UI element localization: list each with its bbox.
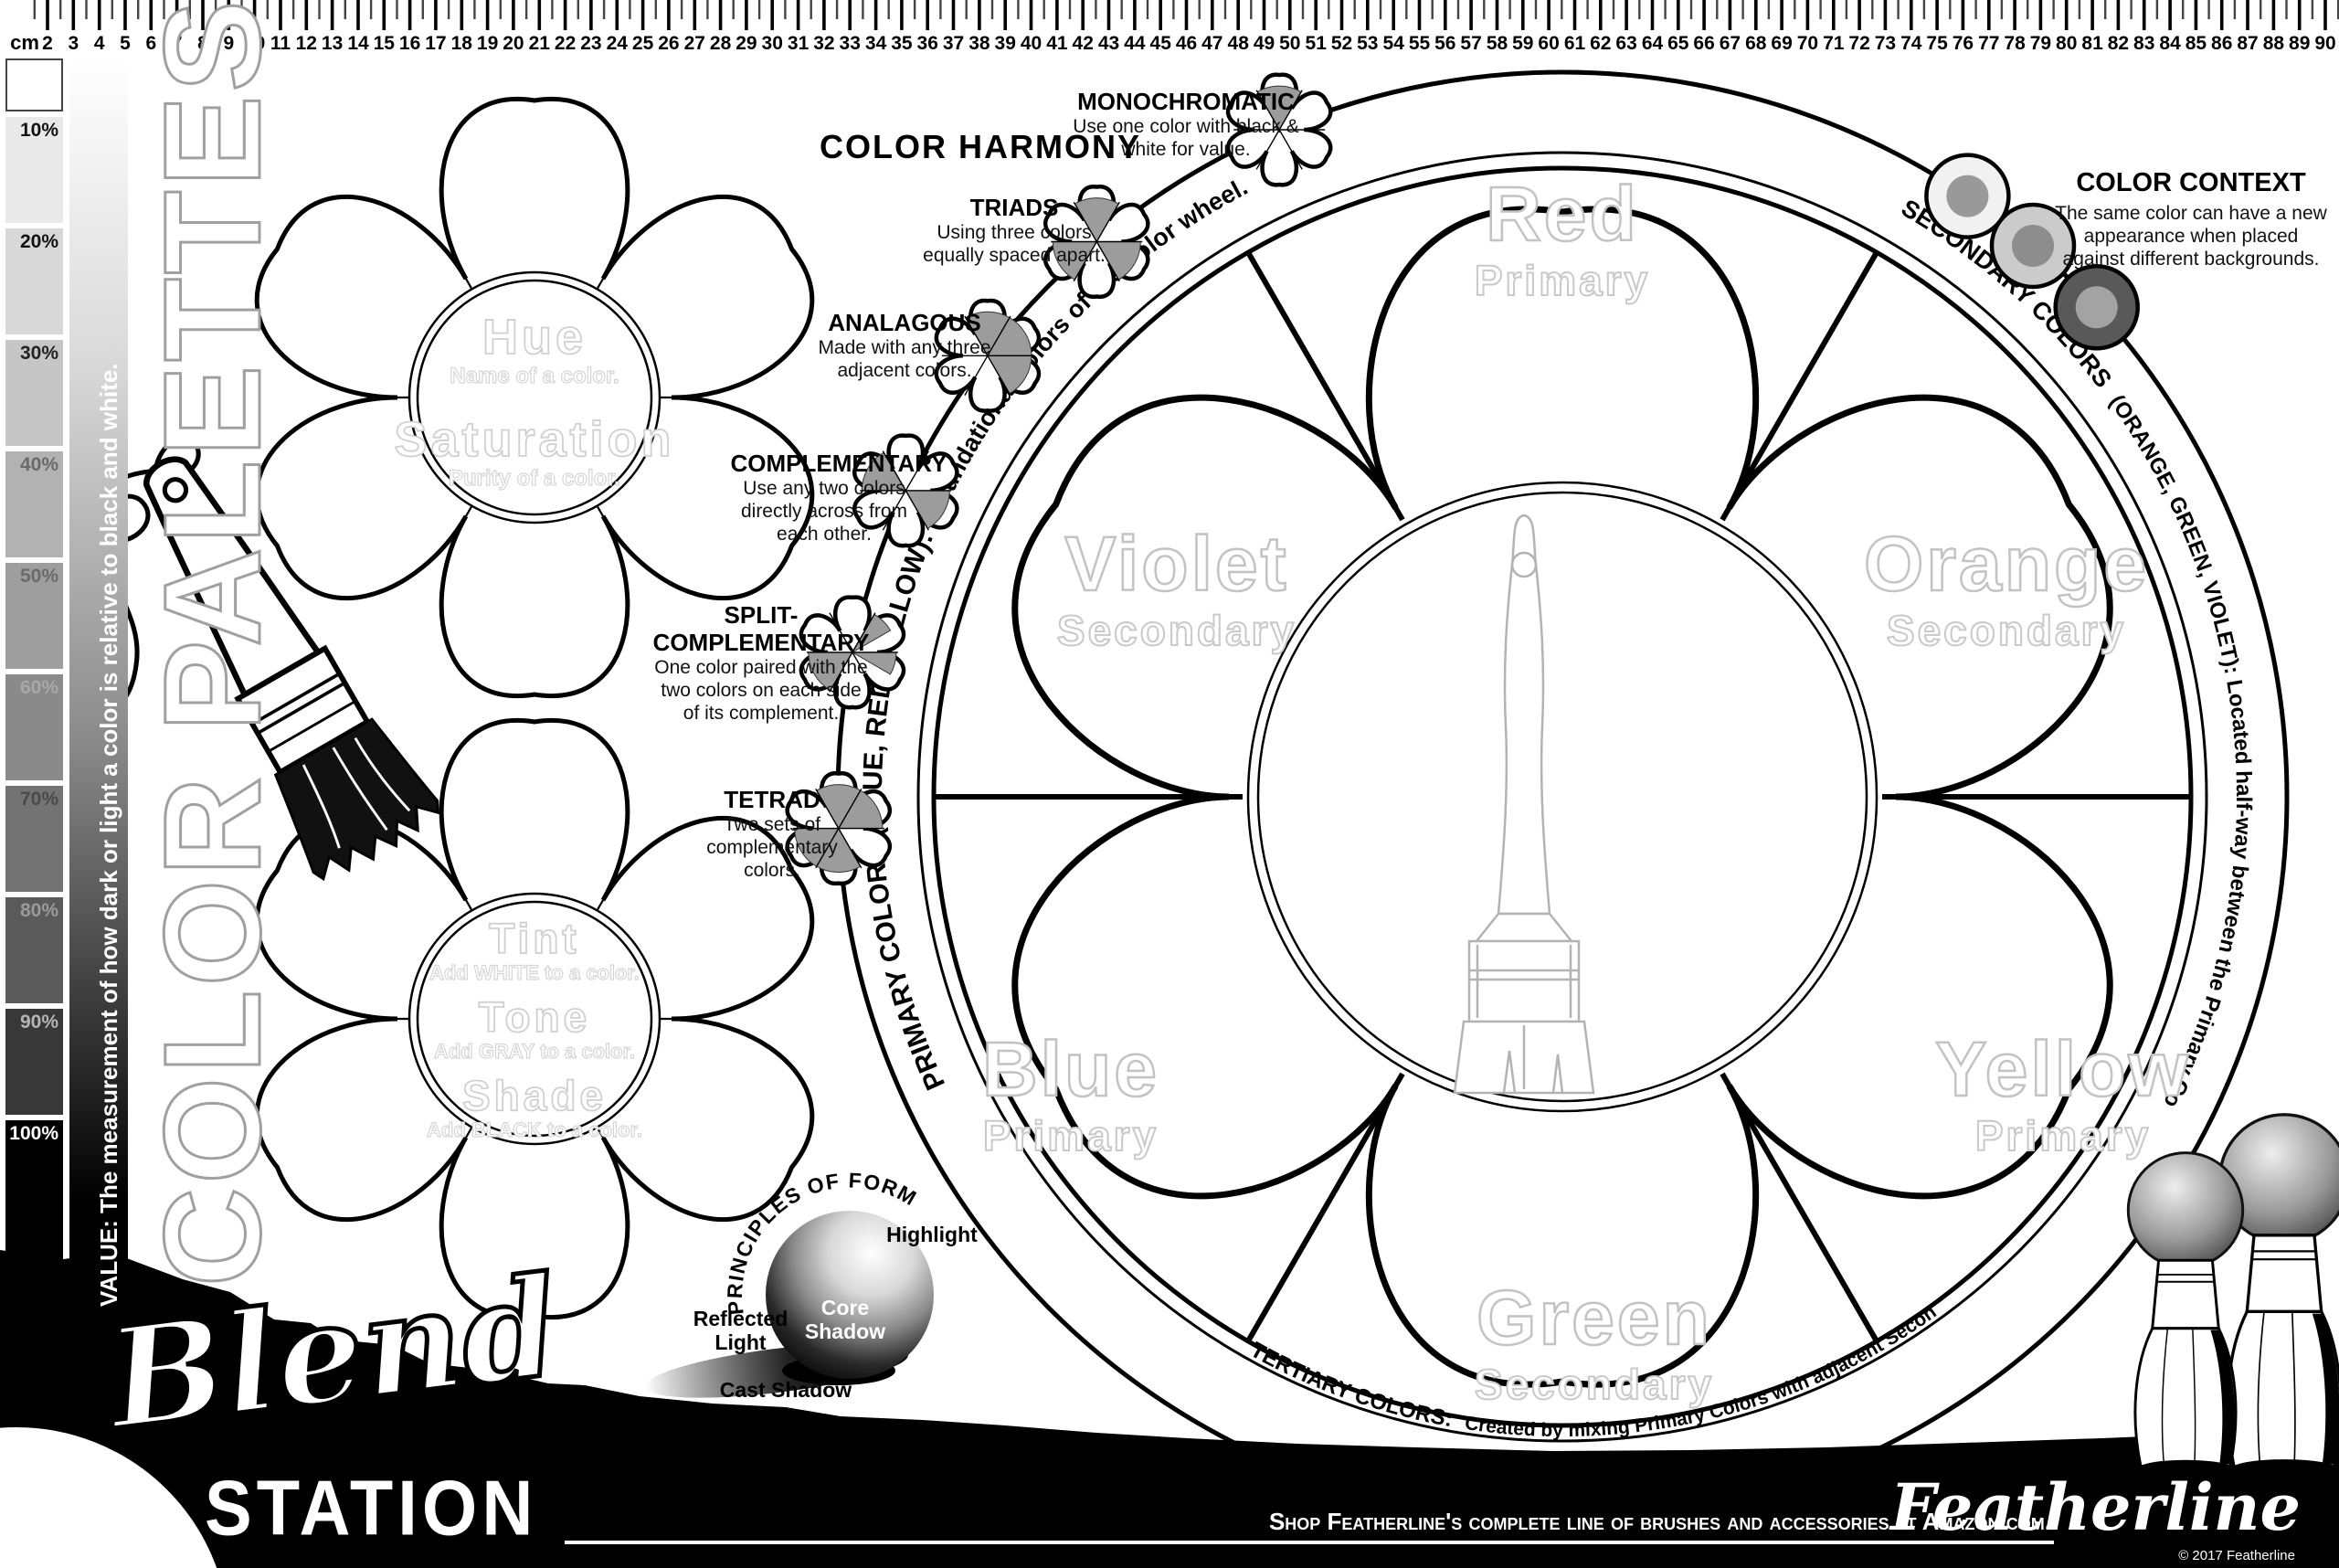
ruler-number: 30	[762, 33, 783, 54]
ruler-number: 59	[1512, 33, 1533, 54]
ruler-number: 73	[1875, 33, 1896, 54]
ruler-number: 45	[1150, 33, 1172, 54]
ruler-number: 72	[1848, 33, 1869, 54]
ruler-number: 86	[2211, 33, 2232, 54]
ruler-number: 75	[1926, 33, 1948, 54]
ruler-number: 32	[813, 33, 834, 54]
ruler-number: 43	[1098, 33, 1119, 54]
ruler-number: 35	[891, 33, 913, 54]
ruler-number: 10	[244, 33, 265, 54]
ruler-number: 58	[1487, 33, 1508, 54]
ruler-number: 12	[296, 33, 317, 54]
ruler-number: 76	[1953, 33, 1974, 54]
blend-station-mat: PRIMARY COLORS (BLUE, RED, YELLOW): Foun…	[0, 0, 2339, 1568]
ruler-number: 42	[1073, 33, 1094, 54]
ruler-number: 14	[347, 33, 369, 54]
ruler-number: 15	[374, 33, 396, 54]
harmony-flower-split	[801, 598, 904, 708]
ruler-number: 29	[736, 33, 757, 54]
ruler-number: 56	[1434, 33, 1455, 54]
ruler: 2345678910111213141516171819202122232425…	[10, 0, 2338, 54]
ruler-number: 7	[172, 33, 183, 54]
ruler-number: 48	[1228, 33, 1250, 54]
ruler-number: 65	[1667, 33, 1689, 54]
ruler-number: 79	[2030, 33, 2051, 54]
ruler-number: 22	[555, 33, 576, 54]
ruler-number: 41	[1046, 33, 1068, 54]
ruler-number: 78	[2004, 33, 2026, 54]
ruler-number: 34	[865, 33, 887, 54]
ruler-number: 63	[1615, 33, 1636, 54]
ruler-number: 81	[2081, 33, 2103, 54]
ruler-number: 52	[1331, 33, 1352, 54]
ruler-number: 11	[270, 33, 291, 54]
ruler-number: 4	[94, 33, 105, 54]
color-wheel	[936, 209, 2189, 1384]
ruler-number: 47	[1201, 33, 1222, 54]
ruler-number: 53	[1357, 33, 1378, 54]
ruler-number: 27	[684, 33, 705, 54]
ruler-number: 16	[399, 33, 420, 54]
ruler-number: 23	[580, 33, 601, 54]
ruler-number: 50	[1279, 33, 1300, 54]
ruler-number: 51	[1306, 33, 1328, 54]
ruler-number: 54	[1383, 33, 1405, 54]
ruler-number: 9	[223, 33, 234, 54]
ruler-number: 66	[1693, 33, 1714, 54]
ruler-number: 21	[529, 33, 551, 54]
ruler-number: 89	[2289, 33, 2310, 54]
ruler-number: 44	[1124, 33, 1146, 54]
ruler-number: 20	[503, 33, 524, 54]
ruler-number: 80	[2056, 33, 2077, 54]
shaded-sphere	[766, 1211, 934, 1379]
blending-brush-right	[2220, 1115, 2339, 1478]
ruler-unit: cm	[10, 31, 39, 54]
ruler-number: 61	[1564, 33, 1586, 54]
ruler-number: 25	[632, 33, 654, 54]
harmony-flower-triads	[1045, 186, 1148, 297]
ruler-number: 84	[2159, 33, 2181, 54]
ruler-number: 69	[1771, 33, 1792, 54]
ruler-number: 57	[1460, 33, 1481, 54]
ruler-number: 70	[1797, 33, 1818, 54]
ruler-number: 6	[145, 33, 156, 54]
ruler-number: 60	[1538, 33, 1559, 54]
harmony-flower-analagous	[937, 301, 1039, 411]
ruler-number: 19	[477, 33, 498, 54]
ruler-number: 13	[322, 33, 343, 54]
ruler-number: 82	[2108, 33, 2129, 54]
harmony-flower-monochromatic	[1228, 75, 1330, 185]
context-circle-inner	[2012, 225, 2054, 267]
ruler-number: 28	[710, 33, 732, 54]
ruler-number: 26	[658, 33, 679, 54]
ruler-number: 33	[840, 33, 861, 54]
practice-center-circle	[409, 272, 660, 523]
ruler-number: 2	[42, 33, 53, 54]
ruler-number: 36	[917, 33, 938, 54]
ruler-number: 83	[2133, 33, 2154, 54]
context-circle-inner	[2076, 286, 2118, 328]
ruler-number: 18	[451, 33, 473, 54]
ruler-number: 3	[68, 33, 79, 54]
ruler-number: 39	[995, 33, 1016, 54]
ruler-number: 67	[1720, 33, 1741, 54]
harmony-flower-tetrad	[788, 773, 890, 884]
ruler-number: 17	[425, 33, 446, 54]
ruler-number: 90	[2314, 33, 2335, 54]
brush-mop-head	[2128, 1153, 2242, 1267]
context-circle-inner	[1946, 175, 1988, 217]
ruler-number: 46	[1176, 33, 1197, 54]
ruler-number: 87	[2237, 33, 2258, 54]
ruler-number: 68	[1745, 33, 1767, 54]
footer-splash	[0, 1250, 2339, 1568]
ruler-number: 37	[943, 33, 964, 54]
ruler-number: 8	[197, 33, 208, 54]
ruler-number: 74	[1900, 33, 1922, 54]
ruler-number: 49	[1254, 33, 1275, 54]
ruler-number: 5	[120, 33, 131, 54]
mat-artwork: PRIMARY COLORS (BLUE, RED, YELLOW): Foun…	[0, 0, 2339, 1568]
harmony-flower-complementary	[854, 436, 957, 546]
practice-center-circle	[409, 894, 660, 1144]
ruler-number: 55	[1409, 33, 1431, 54]
footer-rule	[565, 1541, 2054, 1544]
ruler-number: 38	[968, 33, 990, 54]
ruler-number: 62	[1590, 33, 1611, 54]
ruler-number: 85	[2186, 33, 2207, 54]
ruler-number: 77	[1978, 33, 1999, 54]
ruler-number: 31	[788, 33, 810, 54]
ruler-number: 71	[1823, 33, 1845, 54]
ruler-number: 40	[1021, 33, 1042, 54]
ruler-number: 64	[1642, 33, 1664, 54]
ruler-number: 24	[607, 33, 629, 54]
ruler-number: 88	[2263, 33, 2285, 54]
blending-brushes-illustration	[2128, 1115, 2339, 1478]
blending-brush-left	[2128, 1153, 2242, 1477]
